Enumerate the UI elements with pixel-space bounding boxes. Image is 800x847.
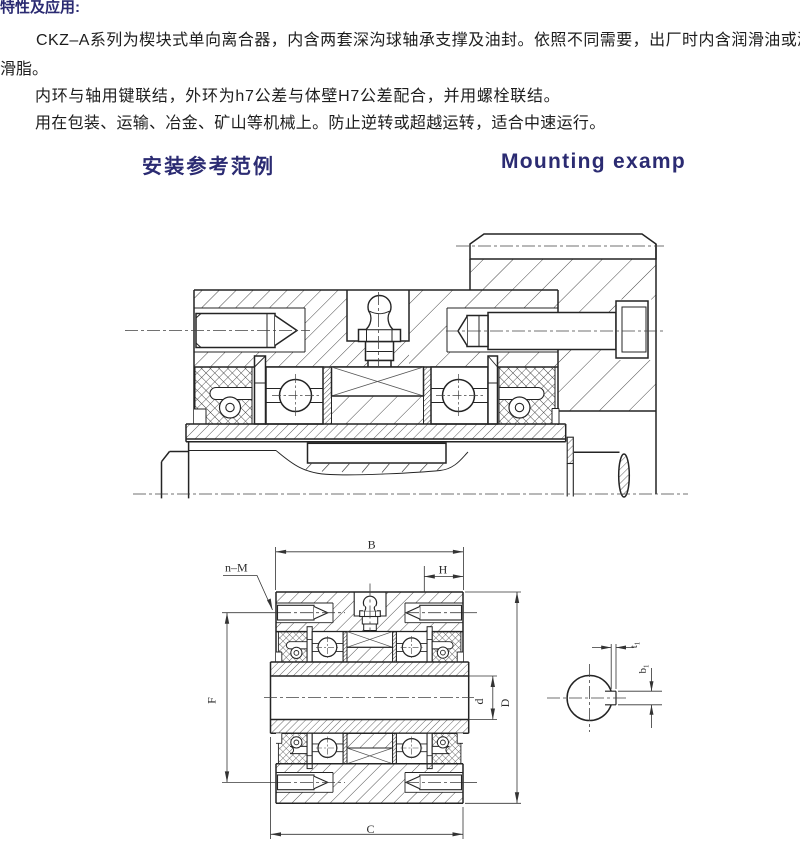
svg-text:D: D xyxy=(498,698,512,707)
svg-text:d: d xyxy=(472,699,486,705)
svg-text:n–M: n–M xyxy=(225,561,248,575)
svg-text:t1: t1 xyxy=(628,641,642,648)
svg-text:B: B xyxy=(368,538,376,552)
svg-text:C: C xyxy=(366,822,374,836)
svg-text:b1: b1 xyxy=(637,664,651,674)
svg-text:H: H xyxy=(439,563,448,577)
svg-text:F: F xyxy=(205,697,219,704)
